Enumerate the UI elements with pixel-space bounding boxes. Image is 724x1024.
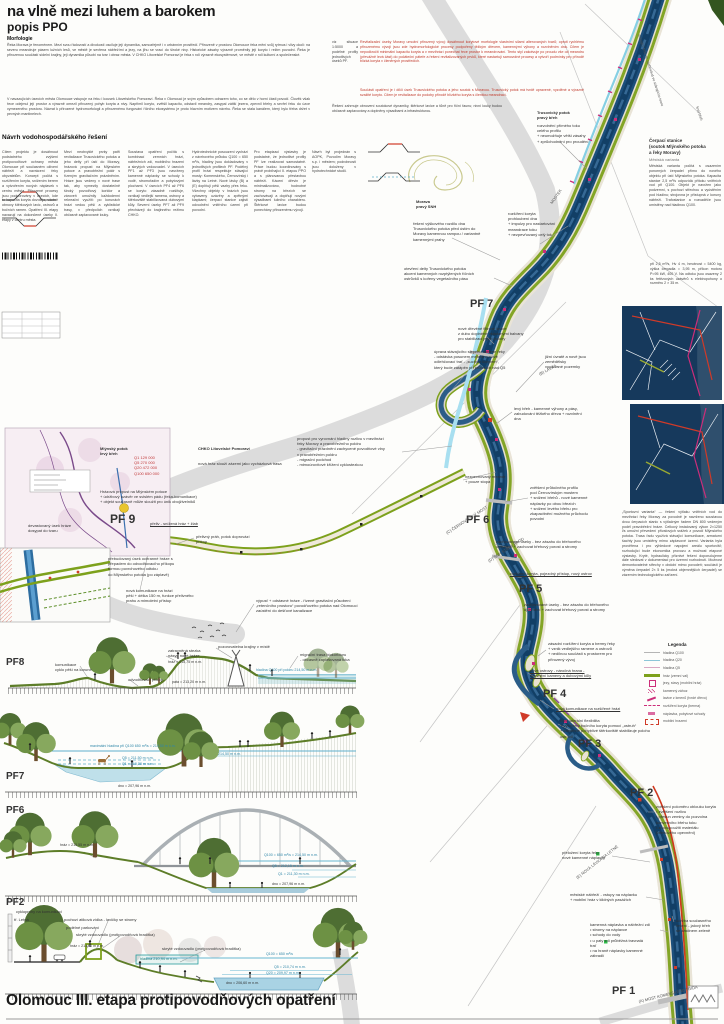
annotation: zvětšení poloměru oblouku koryta • zvětš… [656,804,722,835]
annotation: zásadní rozšíření koryta a bermy řeky + … [548,641,620,662]
annotation: přebudovaný úsek ochranné hráze s přepad… [108,556,182,577]
pf-label-7: PF 7 [470,297,510,311]
navrh-column-2: Mezi neobvyklé prvky patří revitalizace … [64,150,120,218]
label-trusovicky-potok: Trusovický potok pravý břeh [537,110,589,120]
annotation: 214,50 m n.m. [218,752,252,757]
legend-item: hladina Q20 [644,657,724,665]
legend-item-label: hladina Q20 [663,658,682,662]
annotation: levý břeh - kamenné výhony a pásy, zabud… [514,406,586,422]
annotation: propust pro vyrovnání hladiny rozlivu v … [297,436,403,467]
pf-label-4: PF 4 [543,687,583,701]
annotation: nové dřevěné filtrové lavice z dubu dopl… [458,326,526,342]
heading-morfologie: Morfologie [7,36,33,42]
section-label-pf8: PF8 [6,656,36,669]
pf-label-9: PF 9 [110,512,150,528]
annotation: komunikace cyklo pěší na koruně [55,662,107,672]
annotation: skryté vzdouvadlo (protipovodňová hradít… [162,946,256,951]
annotation: řešení výškového rozdílu dna Trusovickéh… [413,221,487,242]
annotation: maximální hladina při Q100 650 m³/s = 21… [90,744,202,749]
navrh-column-3: Soustava opatření počítá s kombinací zem… [128,150,184,218]
cerpaci-variant-label: Městská varianta [649,157,721,162]
annotation: Q1 = 210,38 m n.m. [122,762,168,767]
forest-corner [708,0,724,26]
annotation: nová hráz slouží zázemí jako vycházková … [198,461,294,466]
annotation: Hrázová propust na Mlýnském potoce + údr… [100,489,212,505]
lavice-legend-icon [644,695,660,701]
annotation: přelivný práh, potok doprovází příkop [196,534,260,544]
inset-pf9-detail [0,548,110,622]
annotation: Q1 129 000 Q5 270 000 Q20 472 000 Q100 6… [134,455,184,476]
annotation: zachovávané úseky - bez zásahu do břehov… [524,602,618,612]
annotation: devastovaný úsek hráze dosypat do tvaru [28,523,76,533]
berma-legend-icon [644,703,660,709]
annotation: zatravněná stezka násyp nové hráze [168,648,214,658]
footer-title: Olomouc III. etapa protipovodňových opat… [6,992,336,1010]
legend-item: kamenný zához [644,687,724,695]
inset-navy-plan-b [630,404,724,504]
line-blue-legend-icon [644,657,660,663]
navrh-column-7: viz situace 1:5000 a podélné profily jed… [332,40,358,64]
annotation: pochozí atiková zídka - lavičky se strom… [64,917,154,922]
annotation: hladina Q100 při poldru 214,50 m n.m. [256,668,340,673]
legend-item-label: hladina Q100 [663,651,684,655]
annotation: pata = 213,20 m n.m. [172,680,220,685]
annotation: nezpevňovaný meandr + pouze stopa [465,474,517,484]
label-chko: CHKO Litovelské Pomoraví [198,446,280,451]
label-morava: Morava pravý SNH [416,199,456,209]
legend-item-label: jezy, stavy (mobilní hráz) [663,681,701,685]
annotation: přeliv - snížená hráz + žlab [150,521,212,526]
poster-subtitle: popis PPO [7,20,68,34]
legend-item: hladina Q100 [644,649,724,657]
annotation: údržba současného řešení - jalový břeh s… [676,918,722,934]
navrh-column-5: Pro etapizaci výstavby je podstatné, že … [254,150,306,213]
legend-item-label: rozšíření koryta (berma) [663,704,700,708]
annotation: tř. Letná [14,917,44,922]
annotation: hráz = 215,55 m n.m. [60,843,108,848]
intro-note-black: Řešení zahrnuje obnovení soutokové dynam… [332,104,502,114]
heading-cerpaci-stanice: Čerpací stanice (soutok Mlýnského potoka… [649,138,721,156]
annotation: nová komunikace na rozšířené hrázi [556,706,628,711]
annotation: podélné parkování [66,925,112,930]
annotation: otevření delty Trusovického potoka akcen… [404,266,496,282]
annotation: Q100 = 650 m³/s = 214,50 m n.m. [264,853,336,858]
annotation: kamenná náplavka a nábřežní zdi • stromy… [590,922,662,958]
poster-olomouc-ppo: na vlně mezi luhem a barokem popis PPO M… [0,0,724,1024]
section-label-pf7: PF7 [6,770,36,783]
annotation: výpusť + odstavné hráze - řízené gravita… [256,598,368,614]
legend: Legenda hladina Q100hladina Q20hladina Q… [644,642,724,725]
legend-item: náplavka, pobytové schody [644,710,724,718]
legend-item-label: hráz (zemní val) [663,674,688,678]
legend-item-label: lavice z kmenů (tvrdé dřevo) [663,696,707,700]
legend-item: lavice z kmenů (tvrdé dřevo) [644,695,724,703]
annotation: Q20 = 209,97 m n.m. [266,971,314,976]
annotation: cyklopruhy na komunikaci [16,909,74,914]
line-grey-legend-icon [644,650,660,656]
jez-legend-icon [644,680,660,686]
legend-item: rozšíření koryta (berma) [644,702,724,710]
annotation: dno = 207,96 m n.m. [272,882,318,887]
annotation: říční laterální flexibilita + vytvoření … [560,718,656,739]
annotation: dno = 207,96 m n.m. [118,784,164,789]
cerpaci-body: Městská varianta počítá s osazením ponor… [649,164,721,208]
navrh-column-6: Návrh byl projednán s AOPK, Povodím Mora… [312,150,356,174]
annotation: pozorovatelna krajiny v místě [218,644,282,649]
annotation: Q100 = 650 m³/s [266,952,308,957]
intro-note-red-2: Součástí opatření je i dílčí úsek Trusov… [360,88,584,98]
annotation: Q1 = 211,30 m n.m. [278,872,324,877]
naplavka-legend-icon [644,711,660,717]
inset-navy-plan-a [622,306,722,400]
annotation: Q5 = 211,50 m n.m. [122,756,168,761]
annotation: hráz = 215,75 m n.m. [168,660,216,665]
annotation: nové ostrovy - náročná hrana - zpevnění … [530,668,598,678]
legend-item: jezy, stavy (mobilní hráz) [644,679,724,687]
poster-title: na vlně mezi luhem a barokem [7,3,215,20]
sport-variant-paragraph: „Sportovní varianta“ — řešení výtlaku vn… [622,510,722,578]
morfologie-paragraph-1: Řeka Morava je fenoménem. Mezi svou řádo… [7,43,310,58]
pf-label-3: PF 3 [578,737,618,751]
annotation: skryté vzdouvadlo (protipovodňová hradít… [76,932,170,937]
section-pf2 [5,905,367,1000]
cerpaci-body-2: při 2,5 m³/s, Hv 4 m, hmotnost = 5400 kg… [650,262,722,286]
annotation: zvětšení průtočného profilu pod Černovír… [530,485,598,521]
intro-note-red-1: Revitalizační úseky Moravy umožní přiroz… [360,40,584,64]
legend-item-label: hladina Q5 [663,666,680,670]
meander-sketch [409,156,474,190]
annotation: Q5 = 212,15 m n.m. [272,864,318,869]
navrh-column-4: Hydrotechnické posouzení vychází z návrh… [192,150,248,213]
annotation: nová komunikace na hrázi pěší + délka 15… [126,588,194,604]
legend-item-label: mobilní hrazení [663,719,687,723]
legend-item: hráz (zemní val) [644,672,724,680]
annotation: odvodňovací příkop [128,677,174,682]
annotation: rozšíření koryta, pojezdný přístup, nový… [510,571,600,576]
annotation: městské nábřeží - vstupy na náplavku + m… [570,892,648,902]
navrh-column-1: Cílem projektu je dosáhnout podstatného … [2,150,58,223]
annotation: hladina 210,94 m n.m. [140,957,196,962]
annotation: dno = 206,60 m n.m. [226,981,272,986]
legend-item-label: náplavka, pobytové schody [663,712,705,716]
legend-item-label: kamenný zához [663,689,688,693]
annotation: hráz = 213,80 m n.m. [70,944,118,949]
morfologie-paragraph-2: V navazujících úsecích města Olomouce vs… [7,97,310,116]
pf-label-2: PF 2 [630,786,670,800]
section-label-pf6: PF6 [6,804,36,817]
line-pink-legend-icon [644,665,660,671]
section-label-pf2: PF2 [6,896,36,909]
annotation: rozvolnění přímého toku celého profilu +… [537,123,599,144]
zahoz-legend-icon [644,688,660,694]
legend-title: Legenda [668,642,724,647]
legend-item: hladina Q5 [644,664,724,672]
section-pf7 [0,705,364,798]
legend-item: mobilní hrazení [644,717,724,725]
pf-label-5: PF 5 [519,582,559,596]
heading-navrh: Návrh vodohospodářského řešení [2,134,107,141]
annotation: Q5 = 210,74 m n.m. [274,965,320,970]
annotation: úprava stávajícího slepého ramene řeky -… [434,349,508,370]
line-olive-legend-icon [644,673,660,679]
annotation: rozšíření koryta prohloubení dna + impul… [508,211,570,237]
annotation: migrační trasa biokoridoru - občasně zap… [300,652,358,662]
